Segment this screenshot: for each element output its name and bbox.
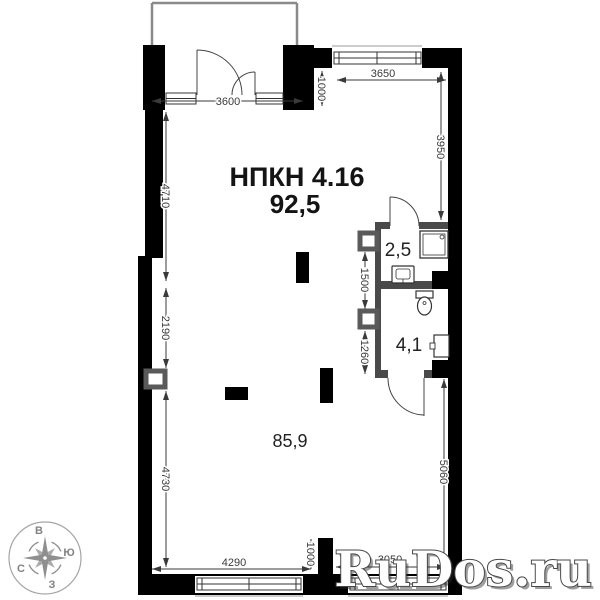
dim-label: 4710 bbox=[159, 184, 171, 208]
compass-letter-west: З bbox=[49, 579, 56, 591]
vent-shaft bbox=[360, 311, 377, 327]
vent-shaft bbox=[146, 371, 165, 387]
dim-label: 1500 bbox=[358, 268, 370, 292]
dim-label: 1000 bbox=[315, 77, 327, 101]
watermark: RuDos.ru RuDos.ru bbox=[334, 540, 595, 600]
total-area-label: 92,5 bbox=[270, 189, 321, 219]
wall-segment bbox=[448, 48, 462, 594]
wall-stub bbox=[432, 271, 462, 289]
bathroom-large-door bbox=[388, 378, 424, 416]
compass-letter-south: Ю bbox=[63, 547, 74, 559]
bath-large-area-label: 4,1 bbox=[396, 335, 422, 356]
shower-tray bbox=[420, 231, 448, 258]
room-labels: НПКН 4.16 92,5 2,5 4,1 85,9 bbox=[230, 162, 423, 451]
vent-shaft bbox=[360, 233, 377, 249]
floor-plan-page: 3600 3650 1000 3950 4710 2190 4730 1500 … bbox=[0, 0, 600, 600]
dim-label: 2190 bbox=[159, 316, 171, 340]
washbasin-small bbox=[392, 266, 414, 283]
unit-label: НПКН 4.16 bbox=[230, 162, 365, 192]
wall-stub bbox=[296, 252, 309, 283]
main-area-label: 85,9 bbox=[272, 431, 307, 451]
compass-letter-east: В bbox=[35, 525, 43, 537]
dimension-labels: 3600 3650 1000 3950 4710 2190 4730 1500 … bbox=[159, 68, 449, 569]
watermark-text: RuDos.ru bbox=[334, 540, 592, 598]
dim-label: 1000 bbox=[304, 542, 316, 566]
dim-label: 5060 bbox=[437, 460, 449, 484]
windows bbox=[166, 46, 448, 596]
dim-label: 3600 bbox=[216, 96, 240, 108]
toilet bbox=[416, 291, 433, 315]
dim-label: 4290 bbox=[222, 557, 246, 569]
dim-label: 4730 bbox=[159, 467, 171, 491]
wall-stub bbox=[318, 538, 333, 576]
dim-label: 1260 bbox=[358, 340, 370, 364]
wall-segment bbox=[138, 256, 152, 578]
floor-plan-drawing: 3600 3650 1000 3950 4710 2190 4730 1500 … bbox=[0, 0, 600, 600]
compass-letter-north: С bbox=[17, 563, 25, 575]
dim-label: 3950 bbox=[434, 135, 446, 159]
entrance-porch bbox=[152, 3, 297, 60]
washbasin-large bbox=[430, 335, 449, 357]
bathroom-small-door bbox=[390, 197, 419, 226]
wall-openings bbox=[165, 48, 448, 593]
window bbox=[256, 93, 283, 104]
bath-small-area-label: 2,5 bbox=[385, 240, 411, 261]
walls bbox=[138, 45, 462, 595]
wall-stub bbox=[432, 360, 462, 378]
window bbox=[166, 93, 196, 104]
shaft-boxes bbox=[146, 233, 377, 387]
dim-label: 3650 bbox=[371, 68, 395, 80]
compass-rose: В Ю С З bbox=[9, 522, 81, 594]
wall-stub bbox=[320, 368, 333, 403]
wall-stub bbox=[225, 387, 248, 400]
dimensions bbox=[152, 71, 446, 569]
